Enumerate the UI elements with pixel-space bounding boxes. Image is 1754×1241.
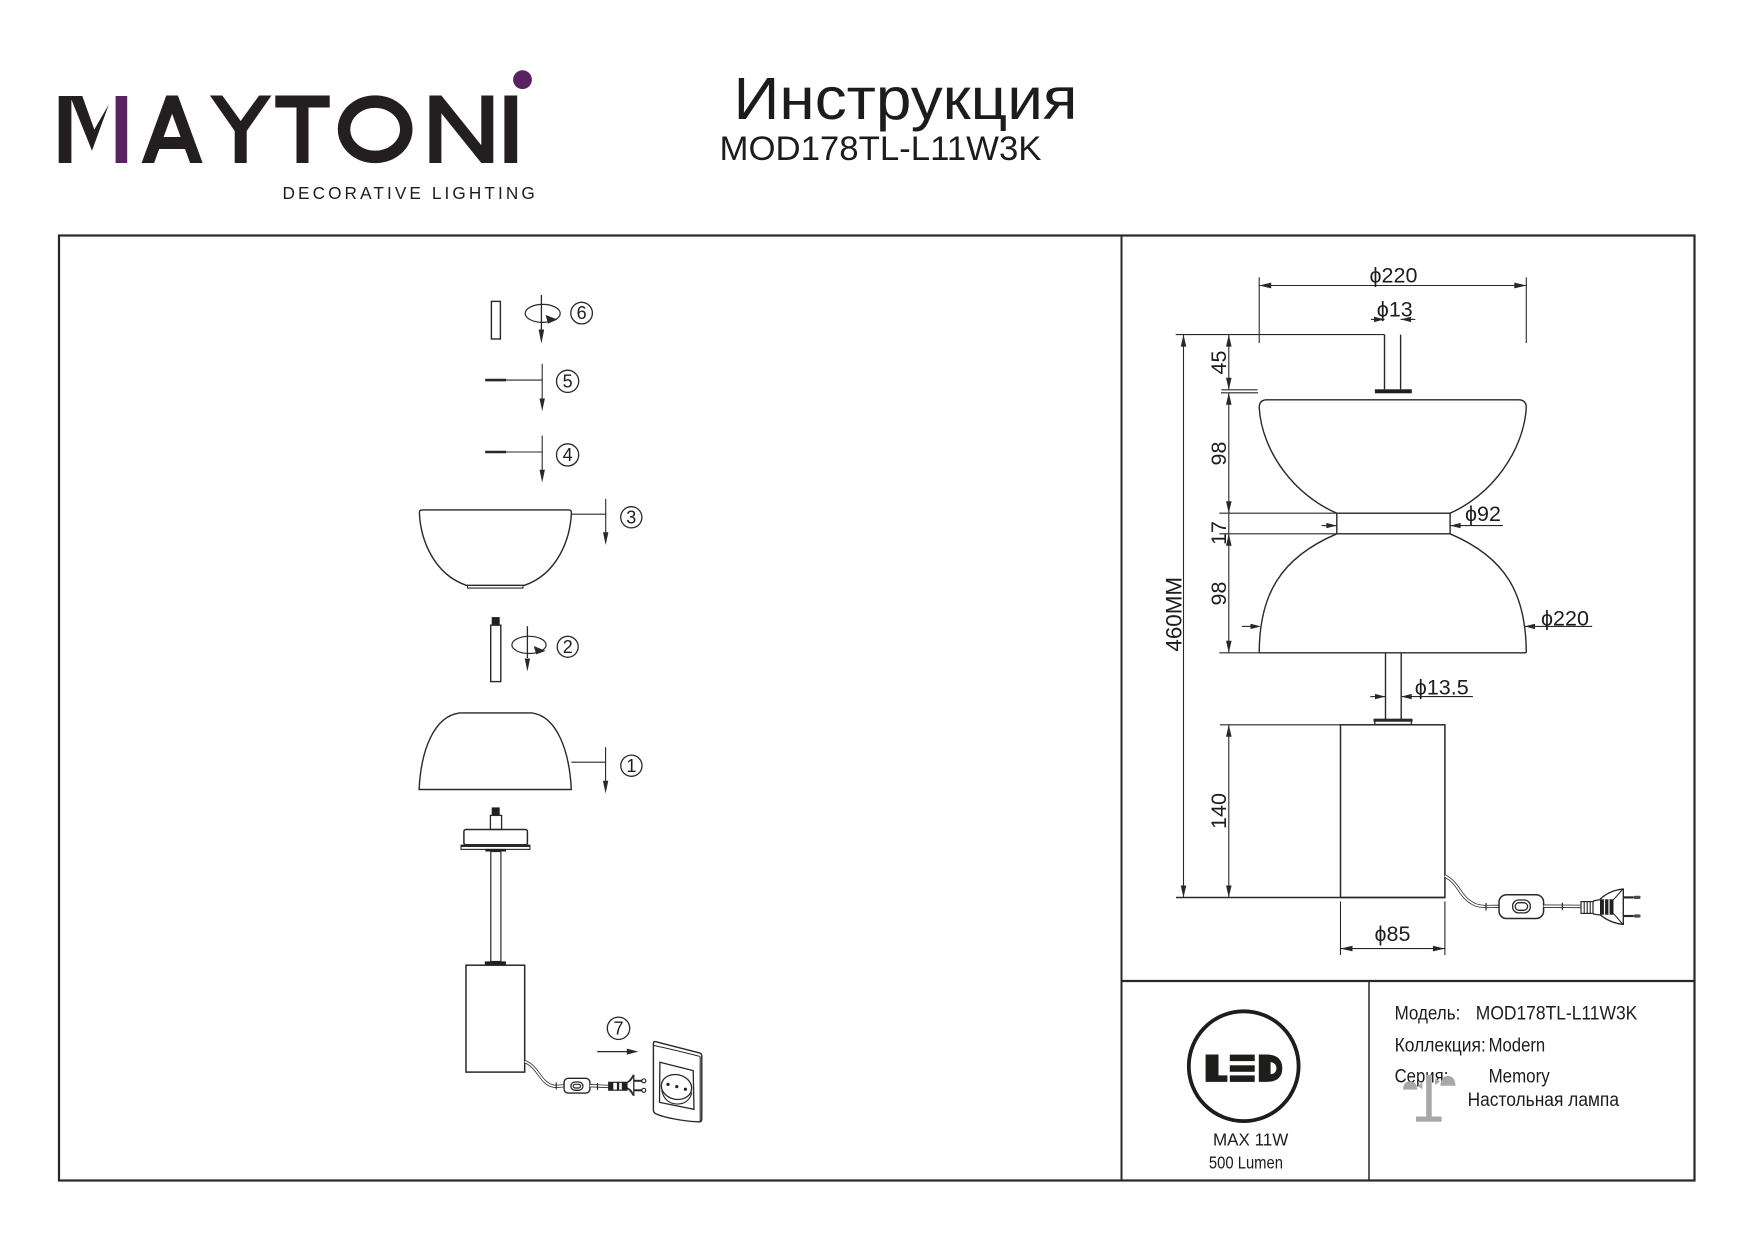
svg-text:3: 3 — [626, 507, 636, 527]
svg-text:Memory: Memory — [1489, 1066, 1551, 1087]
svg-text:98: 98 — [1207, 582, 1231, 606]
svg-text:2: 2 — [563, 637, 573, 657]
svg-text:DECORATIVE LIGHTING: DECORATIVE LIGHTING — [283, 183, 538, 203]
svg-text:ϕ85: ϕ85 — [1375, 922, 1411, 946]
svg-text:ϕ13: ϕ13 — [1377, 297, 1413, 321]
svg-text:6: 6 — [577, 303, 587, 323]
svg-text:Настольная лампа: Настольная лампа — [1468, 1090, 1620, 1111]
svg-text:4: 4 — [563, 445, 573, 465]
svg-text:ϕ92: ϕ92 — [1465, 502, 1501, 526]
svg-text:1: 1 — [626, 756, 636, 776]
svg-text:Коллекция:: Коллекция: — [1395, 1035, 1486, 1056]
svg-text:5: 5 — [563, 371, 573, 391]
svg-text:ϕ220: ϕ220 — [1370, 264, 1418, 288]
svg-text:MAX 11W: MAX 11W — [1213, 1129, 1289, 1149]
svg-text:17: 17 — [1207, 521, 1231, 545]
svg-text:500 Lumen: 500 Lumen — [1209, 1153, 1283, 1173]
svg-text:45: 45 — [1207, 351, 1231, 375]
svg-text:Инструкция: Инструкция — [734, 65, 1078, 132]
svg-text:ϕ13.5: ϕ13.5 — [1415, 676, 1469, 700]
svg-text:MOD178TL-L11W3K: MOD178TL-L11W3K — [720, 130, 1042, 168]
svg-text:Modern: Modern — [1489, 1035, 1546, 1056]
svg-text:ϕ220: ϕ220 — [1541, 607, 1589, 631]
svg-text:460MM: 460MM — [1162, 577, 1187, 652]
svg-text:98: 98 — [1207, 442, 1231, 466]
svg-text:140: 140 — [1207, 793, 1231, 829]
svg-text:7: 7 — [613, 1018, 623, 1038]
svg-text:MOD178TL-L11W3K: MOD178TL-L11W3K — [1476, 1004, 1638, 1025]
svg-text:Модель:: Модель: — [1395, 1004, 1461, 1025]
